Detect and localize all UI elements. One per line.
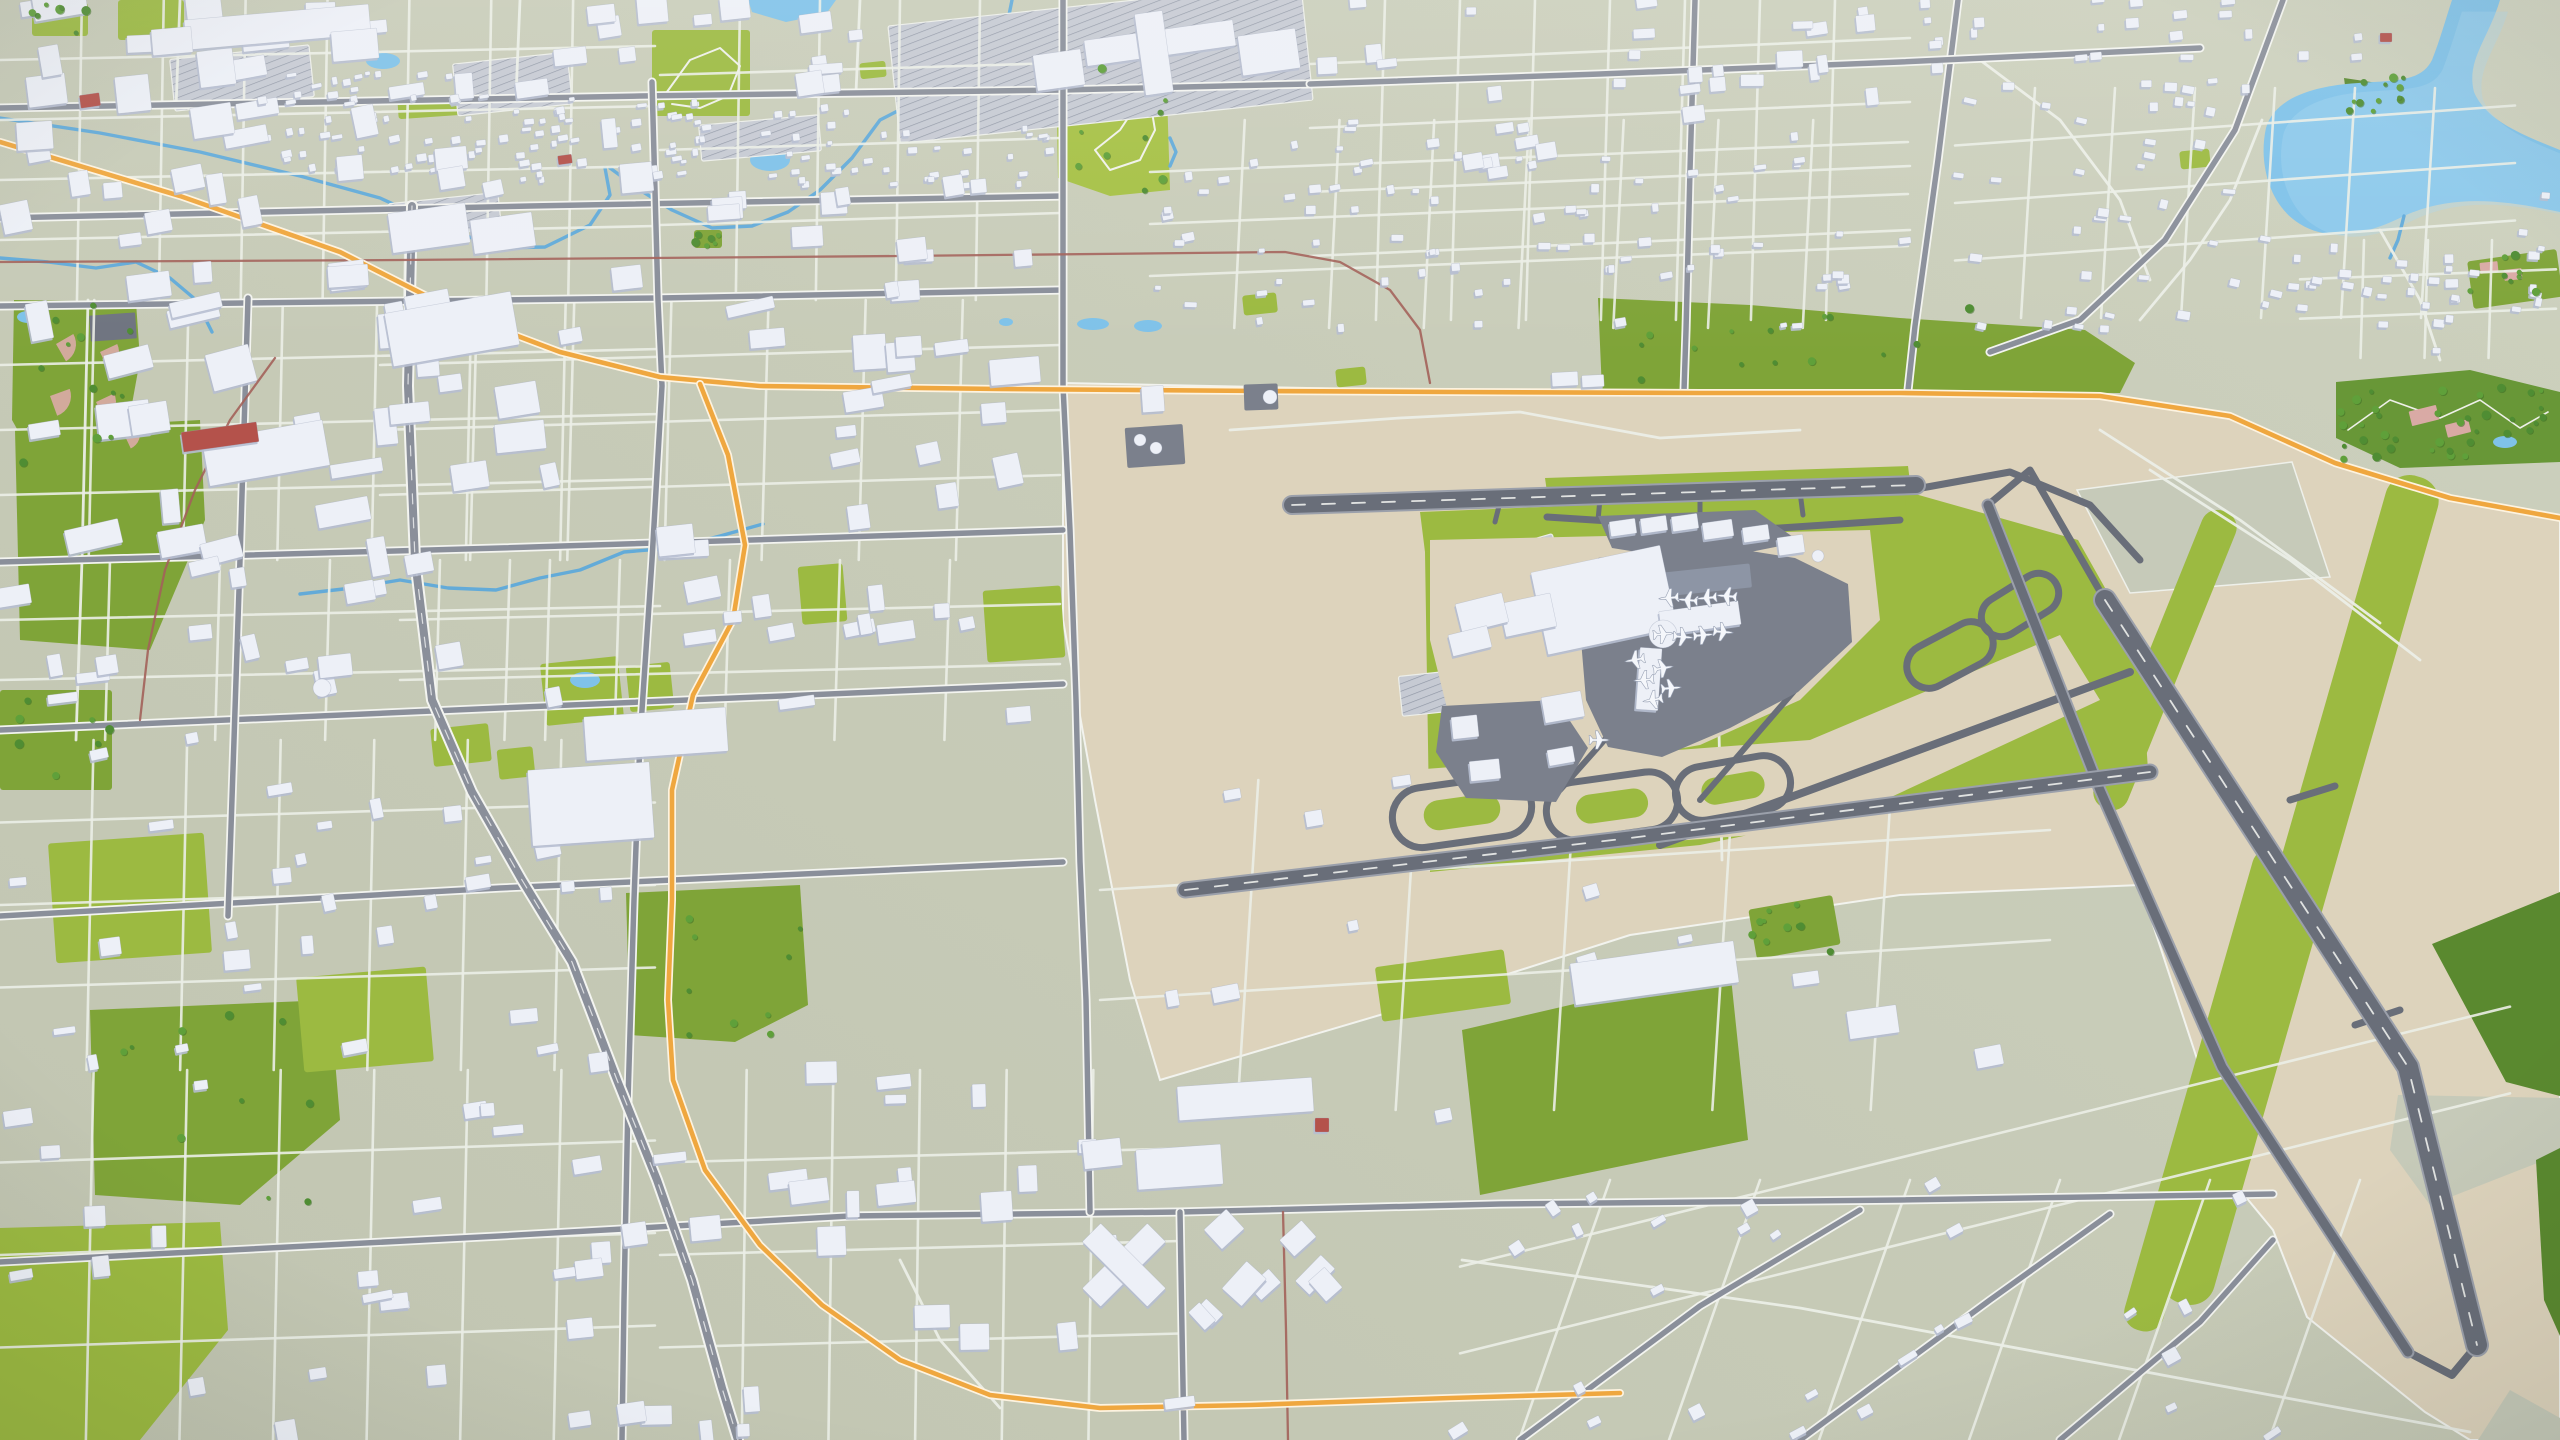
building-roof (1974, 17, 1985, 27)
tree (304, 1198, 311, 1205)
tree (2474, 429, 2478, 433)
tree (2376, 413, 2382, 419)
building-roof (2180, 54, 2193, 60)
tree (2539, 389, 2543, 393)
building-tr-suburb (1173, 240, 1185, 248)
building-roof (2126, 18, 2140, 29)
tree (708, 235, 715, 242)
building-roof (694, 119, 701, 125)
building-roof (187, 1377, 206, 1397)
building-roof (559, 113, 566, 120)
tree (786, 954, 791, 959)
building-tl-comm (436, 166, 466, 193)
building-m-ind (845, 504, 871, 533)
building-bc-low (815, 1226, 846, 1258)
building-m-low (1005, 706, 1032, 726)
building-roof (914, 1305, 950, 1329)
building-roof (881, 131, 887, 138)
building-roof (2141, 80, 2152, 87)
building-tr-city (1627, 50, 1640, 61)
building-roof (520, 176, 527, 182)
mall-tc-c (1031, 49, 1085, 94)
building-roof (1309, 184, 1322, 193)
building-roof (2294, 254, 2301, 262)
building-roof (1633, 28, 1655, 39)
building-roof (286, 128, 294, 137)
water-tank-1 (1263, 390, 1277, 404)
building-roof (551, 140, 557, 147)
building-tr-suburb (1307, 184, 1321, 196)
building-bl-far (565, 1317, 594, 1341)
tree (1808, 357, 1816, 365)
building-roof (934, 603, 950, 619)
building-bl-far (573, 1258, 604, 1282)
building-roof (2194, 139, 2206, 150)
tree (2361, 79, 2368, 86)
mall-tl-anchor-b (329, 28, 379, 64)
tree (2372, 452, 2381, 461)
building-tl-comm (599, 118, 618, 151)
tree (239, 1098, 244, 1103)
building-tl-comm (14, 120, 54, 153)
building-roof (185, 732, 199, 745)
tree (1157, 110, 1163, 116)
building-roof (691, 99, 697, 107)
tree (2502, 273, 2508, 279)
tree (2389, 73, 2398, 82)
building-roof (2445, 279, 2458, 288)
building-roof (1418, 268, 1426, 277)
tree (120, 1048, 127, 1055)
building-bl-far (192, 1080, 208, 1093)
building-roof (2169, 30, 2183, 41)
building-roof (826, 163, 836, 170)
building-roof (2219, 10, 2232, 17)
building-roof (1303, 299, 1315, 306)
building-roof (934, 146, 941, 150)
tree (2434, 410, 2440, 416)
building-roof (1315, 1118, 1329, 1132)
building-roof (694, 14, 713, 26)
building-l-low (184, 732, 200, 747)
building-roof (1431, 196, 1439, 204)
building-roof (527, 762, 654, 846)
tree (1762, 919, 1766, 923)
fuel-tank-2 (1150, 442, 1162, 454)
tree (2447, 448, 2453, 454)
building-roof (128, 401, 171, 436)
building-roof (692, 148, 699, 156)
building-roof (2397, 260, 2408, 267)
building-m-ind (655, 523, 696, 559)
building-roof (190, 102, 235, 139)
building-roof (960, 1323, 990, 1350)
building-roof (885, 1094, 906, 1104)
red-4 (556, 154, 573, 167)
building-tr-far (2124, 18, 2139, 31)
building-bc-low (697, 1420, 714, 1440)
building-roof (152, 1225, 167, 1247)
building-bl-sub (299, 935, 314, 957)
building-roof (774, 111, 783, 118)
building-roof (1535, 141, 1557, 160)
tree (730, 1019, 738, 1027)
building-roof (2262, 301, 2270, 309)
building-roof (1741, 75, 1764, 87)
building-bc-low (845, 1191, 860, 1220)
building-roof (1931, 63, 1943, 74)
building-roof (835, 187, 851, 206)
building-l-low (227, 567, 247, 590)
building-roof (827, 141, 832, 145)
building-roof (723, 610, 742, 623)
tree (108, 435, 113, 440)
building-roof (84, 1205, 106, 1227)
building-roof (699, 136, 705, 143)
building-roof (789, 1177, 830, 1205)
building-m-low (750, 594, 772, 621)
tree (15, 715, 23, 723)
building-roof (309, 1367, 328, 1380)
tree (225, 1011, 234, 1020)
building-roof (844, 109, 850, 115)
building-roof (480, 1103, 495, 1117)
building-roof (417, 71, 428, 79)
building-tr-city (1687, 67, 1703, 86)
building-roof (2137, 163, 2145, 169)
building-roof (577, 158, 588, 167)
city-3d-map (0, 0, 2560, 1440)
building-roof (972, 1084, 986, 1107)
red-1 (78, 93, 102, 111)
building-roof (1608, 265, 1615, 273)
building-tr-far (1930, 63, 1944, 76)
building-roof (424, 894, 438, 910)
building-roof (569, 97, 575, 102)
building-bl-sub (598, 887, 613, 903)
pond (1134, 320, 1162, 332)
building-roof (151, 26, 193, 55)
tank-e (1812, 550, 1824, 562)
building-bc-low (874, 1180, 916, 1208)
slab-2 (1134, 1144, 1223, 1192)
building-roof (1412, 189, 1419, 194)
tree (1075, 163, 1082, 170)
tree (89, 385, 97, 393)
building-roof (1045, 147, 1055, 155)
building-bc-low (1055, 1321, 1078, 1353)
building-dense-a (326, 91, 339, 102)
building-roof (1538, 243, 1551, 250)
building-l-low (187, 624, 213, 643)
building-roof (92, 1255, 111, 1278)
building-tl-mall-blocks (617, 46, 637, 65)
building-roof (188, 624, 212, 641)
building-roof (867, 584, 885, 611)
building-roof (2339, 269, 2352, 278)
building-roof (1591, 184, 1599, 193)
tree (2430, 448, 2435, 453)
building-roof (1924, 17, 1932, 24)
building-roof (2177, 310, 2191, 321)
building-roof (1687, 265, 1694, 271)
building-bc-low (958, 1323, 989, 1352)
tree (77, 333, 85, 341)
building-s-sage (1303, 809, 1325, 830)
building-roof (1391, 235, 1403, 242)
tree (178, 1027, 186, 1035)
building-roof (799, 177, 806, 184)
building-roof (327, 91, 338, 99)
tree (81, 6, 90, 15)
building-roof (1613, 79, 1625, 88)
tree (2337, 408, 2345, 416)
building-roof (2330, 243, 2338, 252)
building-roof (1584, 233, 1595, 242)
tree (2526, 427, 2533, 434)
building-roof (451, 136, 461, 145)
building-dense-b (575, 158, 587, 169)
building-tr-suburb (1897, 237, 1911, 247)
building-roof (2535, 297, 2543, 307)
building-roof (863, 158, 873, 165)
building-roof (2173, 10, 2187, 20)
building-m-ind (834, 425, 857, 441)
building-roof (847, 1191, 860, 1218)
building-roof (1792, 323, 1803, 329)
building-bc-low (742, 1386, 761, 1415)
building-roof (848, 29, 863, 40)
building-m-ind (894, 335, 923, 359)
warehouse-3 (526, 762, 655, 849)
building-roof (1790, 132, 1798, 141)
building-m-ind (851, 333, 887, 372)
building-roof (494, 380, 540, 418)
building-roof (1754, 164, 1766, 170)
building-bc-low (735, 1424, 750, 1440)
tree (2376, 98, 2381, 103)
building-roof (1256, 317, 1263, 325)
building-roof (9, 877, 27, 887)
building-roof (2245, 29, 2253, 39)
building-roof (1284, 193, 1295, 200)
tree (2462, 453, 2468, 459)
tree (93, 434, 102, 443)
building-roof (963, 148, 972, 155)
building-roof (621, 1221, 648, 1247)
building-roof (1713, 64, 1725, 77)
building-roof (2081, 271, 2092, 280)
building-roof (530, 144, 539, 151)
tree (1827, 314, 1834, 321)
g-sm-4 (2179, 148, 2211, 169)
building-bl-far (90, 1255, 111, 1280)
building-roof (331, 28, 379, 62)
building-roof (1474, 289, 1483, 297)
building-roof (522, 127, 532, 132)
building-roof (450, 94, 460, 103)
building-bl-sub (8, 877, 27, 889)
building-roof (883, 167, 890, 173)
hangar-1 (1775, 534, 1805, 558)
building-roof (325, 116, 332, 124)
building-bl-far (566, 1410, 592, 1430)
building-roof (656, 523, 695, 556)
building-roof (820, 104, 829, 112)
building-roof (1582, 374, 1605, 387)
tree (120, 394, 124, 398)
building-m-ind (747, 327, 785, 351)
tree (2502, 254, 2508, 260)
building-roof (699, 1420, 714, 1440)
tree (2497, 384, 2506, 393)
tree (2387, 444, 2395, 452)
building-roof (1614, 317, 1626, 327)
building-roof (2451, 294, 2460, 301)
building-roof (320, 131, 331, 138)
tree (2339, 421, 2347, 429)
tree (1797, 922, 1805, 930)
building-roof (443, 805, 462, 822)
building-tr-far (2073, 54, 2088, 64)
building-tl-mall-blocks (585, 3, 616, 26)
building-tr-suburb (1515, 122, 1530, 136)
building-roof (2377, 294, 2387, 299)
tree (767, 1031, 774, 1038)
building-roof (1682, 105, 1706, 124)
building-l-low (316, 653, 353, 681)
building-roof (801, 155, 810, 161)
building-roof (2363, 286, 2373, 297)
building-roof (903, 130, 910, 137)
building-roof (1652, 203, 1659, 212)
building-roof (99, 936, 122, 956)
building-tr-apts (1461, 152, 1485, 173)
building-roof (1141, 385, 1165, 412)
tree (2352, 100, 2356, 104)
tree (1783, 923, 1791, 931)
building-bl-sub (97, 936, 122, 959)
tree (686, 988, 691, 993)
building-roof (389, 401, 431, 425)
building-roof (1602, 156, 1611, 161)
building-bc-low (970, 1084, 986, 1110)
building-roof (959, 616, 976, 631)
building-bl-sub (559, 881, 575, 895)
building-roof (531, 162, 542, 170)
tree (105, 725, 114, 734)
tree (29, 9, 36, 16)
building-bc-low (1016, 1165, 1038, 1194)
building-roof (1503, 279, 1510, 285)
building-tc-blocks (793, 70, 825, 99)
building-bc-low (979, 1191, 1013, 1224)
building-tl-comm (188, 102, 235, 142)
building-roof (1793, 21, 1813, 29)
building-roof (2445, 315, 2454, 323)
building-roof (2242, 84, 2250, 93)
building-roof (1929, 40, 1942, 49)
tree (2508, 279, 2513, 284)
building-l-low (94, 654, 120, 678)
tree (1881, 352, 1885, 356)
building-m-ind (979, 402, 1007, 426)
building-roof (2354, 33, 2363, 41)
building-roof (536, 171, 543, 178)
building-roof (752, 594, 772, 619)
admin-2 (1580, 374, 1604, 389)
building-roof (2187, 101, 2195, 107)
building-roof (376, 925, 394, 945)
building-tr-suburb (1686, 169, 1699, 178)
building-lake-suburb (2444, 279, 2459, 290)
building-tr-far (2297, 51, 2309, 62)
tree (279, 1018, 286, 1025)
building-tl-mall-blocks (634, 0, 668, 27)
building-roof (2378, 321, 2388, 328)
tree (1098, 64, 1107, 73)
tree (2401, 76, 2405, 80)
building-roof (1451, 263, 1460, 271)
building-roof (2432, 348, 2440, 354)
tree (306, 1100, 314, 1108)
building-roof (876, 1180, 916, 1206)
building-bc-low (913, 1305, 950, 1331)
building-roof (1344, 127, 1356, 132)
building-tr-far (2128, 0, 2143, 10)
building-roof (539, 118, 546, 124)
tree (1739, 362, 1744, 367)
tree (19, 458, 27, 466)
building-roof (438, 373, 463, 392)
building-roof (2073, 226, 2081, 234)
power-bldg (1140, 385, 1166, 415)
building-roof (1026, 132, 1033, 136)
tree (765, 1012, 771, 1018)
building-tr-city (1612, 78, 1626, 89)
g-left-mid (296, 967, 434, 1073)
building-roof (1259, 248, 1265, 253)
building-roof (1381, 277, 1389, 286)
tree (2397, 95, 2401, 99)
building-bl-far (479, 1103, 495, 1119)
building-tc-comm (883, 281, 900, 301)
tree (66, 342, 70, 346)
building-roof (1351, 206, 1359, 213)
tree (2477, 392, 2484, 399)
tree (1965, 304, 1974, 313)
building-roof (981, 402, 1007, 424)
building-roof (383, 115, 390, 122)
building-roof (318, 653, 353, 679)
building-roof (513, 109, 519, 114)
building-roof (435, 641, 464, 669)
building-roof (1237, 28, 1300, 76)
building-roof (103, 181, 123, 198)
building-roof (587, 3, 617, 24)
building-roof (1635, 178, 1643, 183)
building-roof (1349, 0, 1367, 9)
building-roof (719, 0, 751, 21)
building-roof (574, 1258, 604, 1280)
building-roof (2288, 283, 2300, 290)
building-tr-city (1465, 7, 1477, 17)
building-roof (2130, 0, 2144, 7)
building-m-ind (448, 460, 490, 494)
tree (2517, 270, 2522, 275)
building-roof (1629, 50, 1641, 59)
building-roof (702, 124, 712, 131)
